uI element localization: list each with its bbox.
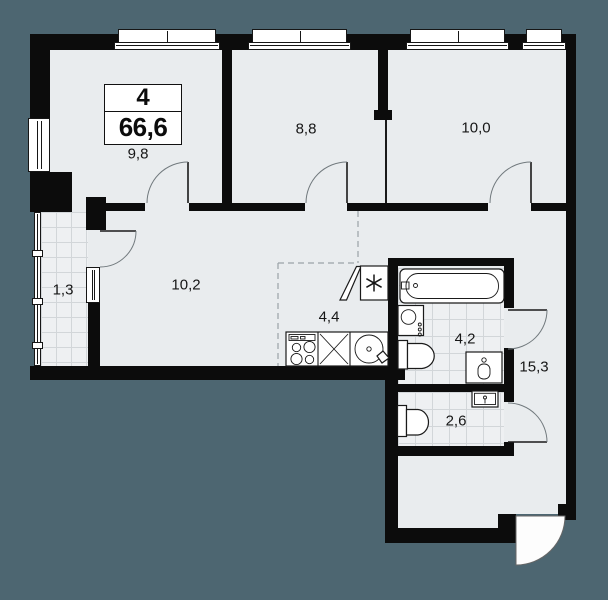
room-label-bedroom3: 10,0 [461,120,490,137]
washing-machine-icon [466,352,502,383]
room-label-bathroom: 4,2 [455,331,476,348]
bathroom-sink-icon [398,306,424,337]
room-label-hallway: 15,3 [519,359,548,376]
floor-plan: 4 66,6 9,8 8,8 10,0 1,3 10,2 4,4 4,2 15,… [0,0,608,600]
kitchen-counter [286,332,389,366]
room-label-kitchen: 4,4 [319,309,340,326]
rooms-count: 4 [105,85,181,112]
room-label-wc: 2,6 [446,413,467,430]
bathroom-fixtures [398,269,504,383]
door-wc [508,403,547,442]
door-bathroom [508,310,547,349]
plan-summary-box: 4 66,6 [104,84,182,145]
door-bedroom2 [306,162,347,203]
entrance-door [516,516,565,565]
room-label-bedroom1: 9,8 [128,146,149,163]
room-label-balcony: 1,3 [53,282,74,299]
door-bedroom3 [490,162,531,203]
room-label-living: 10,2 [171,277,200,294]
bathtub-icon [400,269,504,303]
room-label-bedroom2: 8,8 [296,121,317,138]
bathroom-toilet-icon [398,341,434,370]
vent-duct-icon [340,266,388,300]
door-bedroom1 [147,162,188,203]
total-area: 66,6 [105,112,181,144]
wc-toilet-icon [398,406,429,437]
door-balcony [100,231,136,267]
wc-sink-icon [472,391,498,407]
plan-symbols [0,0,608,600]
